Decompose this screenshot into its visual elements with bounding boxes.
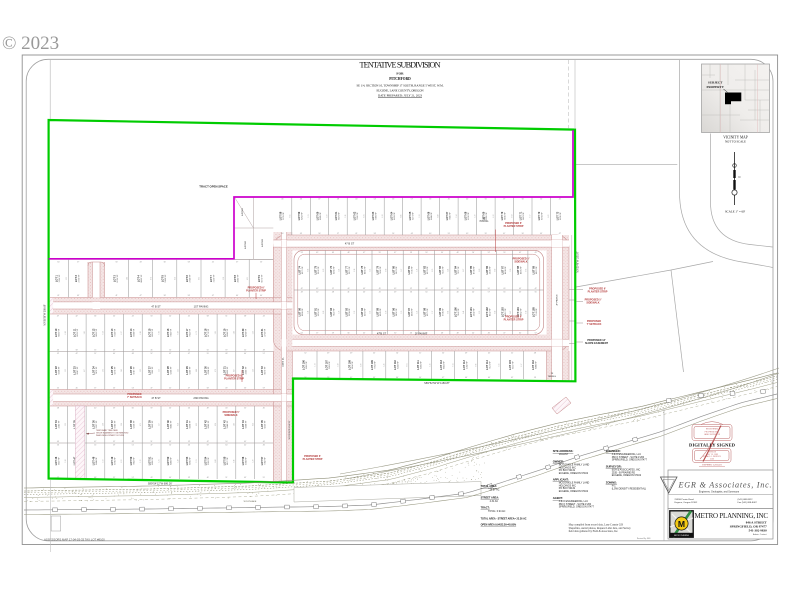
svg-text:1.60: 1.60 <box>121 423 123 426</box>
svg-text:7740 SF: 7740 SF <box>536 308 538 317</box>
svg-text:6153 SF: 6153 SF <box>365 308 367 317</box>
svg-text:0.14: 0.14 <box>175 277 177 280</box>
svg-text:0.88: 0.88 <box>196 369 198 372</box>
svg-text:1.95: 1.95 <box>140 369 142 372</box>
svg-text:4859 SF: 4859 SF <box>152 456 154 465</box>
svg-text:47 B ST: 47 B ST <box>151 396 161 400</box>
svg-text:1.17: 1.17 <box>432 311 434 314</box>
svg-text:6659 SF: 6659 SF <box>96 328 98 337</box>
svg-text:7805 SF: 7805 SF <box>449 211 451 220</box>
svg-text:6356 SF: 6356 SF <box>421 360 423 369</box>
svg-text:SPRINGFIELD, OREGON 97477: SPRINGFIELD, OREGON 97477 <box>559 506 595 509</box>
svg-text:6966 SF: 6966 SF <box>189 456 191 465</box>
svg-text:1.38: 1.38 <box>177 459 179 462</box>
svg-text:0.73: 0.73 <box>215 369 217 372</box>
svg-text:7462 SF: 7462 SF <box>380 266 382 275</box>
svg-text:S89°54'12"W 686.26': S89°54'12"W 686.26' <box>148 482 173 486</box>
svg-text:4298 SF: 4298 SF <box>208 366 210 375</box>
svg-text:Engineers, Geologists, and Sur: Engineers, Geologists, and Surveyors <box>699 491 740 494</box>
svg-text:7013 SF: 7013 SF <box>115 328 117 337</box>
svg-text:TENTATIVE SUBDIVISION: TENTATIVE SUBDIVISION <box>360 61 441 70</box>
svg-text:1.81: 1.81 <box>339 269 341 272</box>
svg-text:8429 SF: 8429 SF <box>264 420 266 429</box>
svg-text:PAVING: PAVING <box>480 220 489 223</box>
svg-text:PLANTER STRIP: PLANTER STRIP <box>588 290 608 293</box>
svg-text:METRO PLANNING: METRO PLANNING <box>674 534 690 537</box>
svg-text:1.39: 1.39 <box>252 459 254 462</box>
svg-text:0.73: 0.73 <box>196 331 198 334</box>
svg-text:7434 SF: 7434 SF <box>59 274 61 283</box>
svg-text:8396 SF: 8396 SF <box>521 266 523 275</box>
svg-text:5416 SF: 5416 SF <box>133 420 135 429</box>
svg-text:EUGENE, OREGON 97402: EUGENE, OREGON 97402 <box>559 490 589 493</box>
svg-text:TOTAL: 0.94 AC: TOTAL: 0.94 AC <box>488 510 506 513</box>
svg-text:0.65: 0.65 <box>199 277 201 280</box>
svg-text:PLANTER STRIP: PLANTER STRIP <box>504 318 524 321</box>
svg-text:VACANT: VACANT <box>559 453 569 456</box>
svg-text:1.92: 1.92 <box>103 369 105 372</box>
svg-text:Fax (541) 688-8087: Fax (541) 688-8087 <box>738 502 758 504</box>
svg-text:26.57 AC: 26.57 AC <box>490 488 500 491</box>
svg-text:0.95: 0.95 <box>526 269 528 272</box>
svg-text:0.18: 0.18 <box>177 423 179 426</box>
svg-text:0.12: 0.12 <box>493 214 495 217</box>
svg-text:5795 SF: 5795 SF <box>283 211 285 220</box>
svg-text:4201 SF: 4201 SF <box>58 420 60 429</box>
svg-text:6986 SF: 6986 SF <box>227 328 229 337</box>
svg-text:1.93: 1.93 <box>419 214 421 217</box>
svg-text:TRACT OPEN SPACE: TRACT OPEN SPACE <box>199 185 228 189</box>
svg-text:5852 SF: 5852 SF <box>396 308 398 317</box>
svg-text:1.69: 1.69 <box>326 214 328 217</box>
svg-text:4294 SF: 4294 SF <box>318 308 320 317</box>
svg-text:7863 SF: 7863 SF <box>133 456 135 465</box>
svg-text:4502 SF: 4502 SF <box>474 308 476 317</box>
svg-text:8488 SF: 8488 SF <box>431 211 433 220</box>
svg-text:LOT 61: LOT 61 <box>242 208 244 216</box>
svg-text:9312 SF: 9312 SF <box>208 456 210 465</box>
svg-text:6947 SF: 6947 SF <box>513 360 515 369</box>
svg-text:N0°05'08"W 358.69': N0°05'08"W 358.69' <box>43 304 46 326</box>
svg-text:0.78: 0.78 <box>385 311 387 314</box>
svg-text:1.56: 1.56 <box>252 331 254 334</box>
svg-text:47 B ST: 47 B ST <box>345 242 355 246</box>
svg-text:0.24: 0.24 <box>215 423 217 426</box>
svg-text:7963 SF: 7963 SF <box>375 360 377 369</box>
svg-text:1.84: 1.84 <box>126 277 128 280</box>
svg-text:0.21: 0.21 <box>247 277 249 280</box>
svg-text:6488 SF: 6488 SF <box>96 456 98 465</box>
svg-text:8267 SF: 8267 SF <box>77 366 79 375</box>
svg-text:0.99: 0.99 <box>432 269 434 272</box>
svg-text:5439 SF: 5439 SF <box>189 366 191 375</box>
svg-text:1.74: 1.74 <box>315 363 317 366</box>
svg-text:ASSESSORS MAP 17-04-03-33 TAX: ASSESSORS MAP 17-04-03-33 TAX LOT #8100 <box>44 537 105 541</box>
svg-text:PLANTER STRIP: PLANTER STRIP <box>504 225 524 228</box>
svg-text:1.86: 1.86 <box>234 423 236 426</box>
svg-text:8714 SF: 8714 SF <box>117 274 119 283</box>
svg-text:Admin. Contact: Admin. Contact <box>753 533 767 536</box>
svg-text:1.29: 1.29 <box>474 214 476 217</box>
svg-text:4232 SF: 4232 SF <box>468 211 470 220</box>
svg-text:7042 SF: 7042 SF <box>458 308 460 317</box>
svg-text:0.23: 0.23 <box>103 331 105 334</box>
svg-text:8088 SF: 8088 SF <box>535 360 537 369</box>
svg-text:TEMPORARY TREE YARD: TEMPORARY TREE YARD <box>96 429 119 432</box>
svg-text:SPRINGFIELD, OREGON 97477: SPRINGFIELD, OREGON 97477 <box>612 459 648 462</box>
svg-text:EUGENE, OREGON 97402: EUGENE, OREGON 97402 <box>559 472 589 475</box>
svg-text:1.21: 1.21 <box>416 311 418 314</box>
svg-text:1.46: 1.46 <box>121 369 123 372</box>
svg-text:7121 SF: 7121 SF <box>443 266 445 275</box>
svg-text:0.13: 0.13 <box>382 214 384 217</box>
svg-text:PITCHFORD: PITCHFORD <box>389 77 411 81</box>
svg-text:SLOPE EASEMENT: SLOPE EASEMENT <box>585 342 609 345</box>
svg-text:0.45: 0.45 <box>307 269 309 272</box>
svg-text:0.74: 0.74 <box>150 277 152 280</box>
svg-text:6476 SF: 6476 SF <box>115 366 117 375</box>
svg-text:8750 SF: 8750 SF <box>542 211 544 220</box>
svg-text:7002 SF: 7002 SF <box>171 328 173 337</box>
svg-text:N: N <box>739 175 741 179</box>
svg-text:LOT 62: LOT 62 <box>245 241 247 249</box>
svg-text:8433 SF: 8433 SF <box>394 211 396 220</box>
svg-text:8707 SF: 8707 SF <box>133 366 135 375</box>
svg-text:0.93: 0.93 <box>511 214 513 217</box>
svg-text:0.31: 0.31 <box>363 214 365 217</box>
svg-text:8438 SF: 8438 SF <box>505 266 507 275</box>
svg-text:8342 SF: 8342 SF <box>489 308 491 317</box>
svg-text:0.64: 0.64 <box>448 311 450 314</box>
svg-text:8681 SF: 8681 SF <box>444 360 446 369</box>
svg-text:0.60: 0.60 <box>494 269 496 272</box>
svg-text:7121 SF: 7121 SF <box>490 360 492 369</box>
svg-text:6870 SF: 6870 SF <box>523 211 525 220</box>
svg-text:W 18TH AVE: W 18TH AVE <box>244 500 257 503</box>
svg-text:EUGENE, OREGON 97402: EUGENE, OREGON 97402 <box>612 474 642 477</box>
svg-text:NOT TO SCALE: NOT TO SCALE <box>725 140 746 144</box>
svg-text:1.55: 1.55 <box>177 369 179 372</box>
svg-text:5903 SF: 5903 SF <box>115 420 117 429</box>
svg-text:7098 SF: 7098 SF <box>375 211 377 220</box>
svg-text:WHEN DEVELOPMENT OCCURS: WHEN DEVELOPMENT OCCURS <box>96 435 125 437</box>
svg-text:1.20: 1.20 <box>345 214 347 217</box>
svg-text:0.11: 0.11 <box>452 363 454 366</box>
svg-text:1.26: 1.26 <box>252 369 254 372</box>
svg-text:METRO PLANNING, INC: METRO PLANNING, INC <box>695 512 769 520</box>
svg-text:4482 SF: 4482 SF <box>467 360 469 369</box>
svg-text:5837 SF: 5837 SF <box>58 456 60 465</box>
svg-text:1.96: 1.96 <box>354 311 356 314</box>
svg-text:4348 SF: 4348 SF <box>489 266 491 275</box>
svg-text:6228 SF: 6228 SF <box>58 366 60 375</box>
svg-text:1.44: 1.44 <box>307 311 309 314</box>
svg-text:6072 SF: 6072 SF <box>536 266 538 275</box>
svg-text:5185 SF: 5185 SF <box>505 211 507 220</box>
svg-text:0.83: 0.83 <box>65 331 67 334</box>
svg-text:0.65: 0.65 <box>290 214 292 217</box>
svg-text:6870 SF: 6870 SF <box>338 211 340 220</box>
svg-text:8579 SF: 8579 SF <box>264 366 266 375</box>
svg-text:8127 SF: 8127 SF <box>227 456 229 465</box>
svg-text:1.76: 1.76 <box>140 459 142 462</box>
svg-text:0.99: 0.99 <box>121 459 123 462</box>
svg-text:1.26: 1.26 <box>339 311 341 314</box>
svg-text:0.39: 0.39 <box>361 363 363 366</box>
svg-text:4706 SF: 4706 SF <box>189 274 191 283</box>
svg-text:0.87: 0.87 <box>510 311 512 314</box>
svg-text:1.74: 1.74 <box>416 269 418 272</box>
svg-text:0.33: 0.33 <box>323 311 325 314</box>
svg-text:0.23: 0.23 <box>252 423 254 426</box>
svg-text:7139 SF: 7139 SF <box>152 366 154 375</box>
svg-text:GROVE EASEMENT TO BE REMOVED: GROVE EASEMENT TO BE REMOVED <box>96 432 129 435</box>
svg-text:8832 SF: 8832 SF <box>141 274 143 283</box>
svg-text:6199 SF: 6199 SF <box>77 328 79 337</box>
svg-text:8084 SF: 8084 SF <box>171 420 173 429</box>
svg-text:6575 SF: 6575 SF <box>427 308 429 317</box>
svg-text:0.37: 0.37 <box>234 369 236 372</box>
svg-text:5380 SF: 5380 SF <box>227 420 229 429</box>
svg-text:6171 SF: 6171 SF <box>302 266 304 275</box>
svg-text:0.67: 0.67 <box>463 269 465 272</box>
svg-text:PLANTER STRIP: PLANTER STRIP <box>246 289 266 292</box>
svg-text:0.89: 0.89 <box>177 331 179 334</box>
svg-text:4.31 AC: 4.31 AC <box>490 500 499 503</box>
svg-text:OPEN AREA 9.94/22.26=45.93%: OPEN AREA 9.94/22.26=45.93% <box>481 524 517 527</box>
svg-text:STREET AREA:: STREET AREA: <box>481 496 500 499</box>
svg-text:LAND SURVEYOR: LAND SURVEYOR <box>704 433 721 436</box>
svg-text:8198 SF: 8198 SF <box>189 420 191 429</box>
svg-text:1.91: 1.91 <box>196 459 198 462</box>
svg-text:7879 SF: 7879 SF <box>96 366 98 375</box>
svg-text:1.61: 1.61 <box>370 311 372 314</box>
svg-text:1.50: 1.50 <box>215 331 217 334</box>
svg-text:4793 SF: 4793 SF <box>79 274 81 283</box>
svg-text:8031 SF: 8031 SF <box>365 266 367 275</box>
svg-text:© 2023: © 2023 <box>2 33 59 54</box>
svg-text:1.50: 1.50 <box>510 269 512 272</box>
svg-text:SIDEWALK: SIDEWALK <box>224 414 237 417</box>
svg-text:7' SETBACK: 7' SETBACK <box>587 323 602 326</box>
svg-text:4233 SF: 4233 SF <box>246 366 248 375</box>
svg-text:5436 SF: 5436 SF <box>171 366 173 375</box>
svg-text:1.29: 1.29 <box>66 277 68 280</box>
svg-text:7622 SF: 7622 SF <box>333 308 335 317</box>
svg-text:1.99: 1.99 <box>401 311 403 314</box>
svg-text:2F PAVING: 2F PAVING <box>556 294 559 305</box>
svg-text:DIGITALLY SIGNED: DIGITALLY SIGNED <box>689 442 736 447</box>
svg-text:0.66: 0.66 <box>196 423 198 426</box>
svg-text:5258 SF: 5258 SF <box>349 308 351 317</box>
svg-text:6403 SF: 6403 SF <box>398 360 400 369</box>
svg-text:0.88: 0.88 <box>215 459 217 462</box>
svg-text:8738 SF: 8738 SF <box>474 266 476 275</box>
svg-text:8393 SF: 8393 SF <box>152 328 154 337</box>
svg-text:0.88: 0.88 <box>437 214 439 217</box>
svg-text:5359 SF: 5359 SF <box>486 211 488 220</box>
svg-text:47TH PL: 47TH PL <box>282 357 285 367</box>
svg-text:1.92: 1.92 <box>103 459 105 462</box>
svg-text:6978 SF: 6978 SF <box>427 266 429 275</box>
svg-text:0.57: 0.57 <box>121 331 123 334</box>
svg-text:0.80: 0.80 <box>140 331 142 334</box>
svg-text:Eugene, Oregon 97402: Eugene, Oregon 97402 <box>675 501 699 504</box>
svg-text:0.17: 0.17 <box>84 369 86 372</box>
svg-text:1ST PAVING: 1ST PAVING <box>194 304 209 308</box>
svg-text:8771 SF: 8771 SF <box>208 328 210 337</box>
svg-text:5693 SF: 5693 SF <box>227 366 229 375</box>
svg-text:0.44: 0.44 <box>463 311 465 314</box>
svg-text:5371 SF: 5371 SF <box>349 266 351 275</box>
svg-text:1.16: 1.16 <box>429 363 431 366</box>
svg-text:0.82: 0.82 <box>159 331 161 334</box>
svg-text:6184 SF: 6184 SF <box>352 360 354 369</box>
svg-text:1.12: 1.12 <box>159 369 161 372</box>
svg-text:PLANTER STRIP: PLANTER STRIP <box>224 377 244 380</box>
svg-text:9693 SF: 9693 SF <box>329 360 331 369</box>
svg-text:EXPIRES: 12/31/23: EXPIRES: 12/31/23 <box>702 465 722 467</box>
svg-text:LOT 63: LOT 63 <box>262 239 264 247</box>
svg-text:2F PAVING: 2F PAVING <box>415 332 427 335</box>
svg-text:0.40: 0.40 <box>234 459 236 462</box>
svg-text:1.81: 1.81 <box>84 331 86 334</box>
svg-text:1.98: 1.98 <box>338 363 340 366</box>
svg-text:S89°52'52"W 1183.87': S89°52'52"W 1183.87' <box>424 381 450 385</box>
svg-text:0.90: 0.90 <box>475 363 477 366</box>
svg-text:0.85: 0.85 <box>400 214 402 217</box>
svg-text:0.22: 0.22 <box>323 269 325 272</box>
svg-text:0.61: 0.61 <box>407 363 409 366</box>
svg-text:SCALE 1" = 60': SCALE 1" = 60' <box>725 210 746 214</box>
svg-text:1.51: 1.51 <box>370 269 372 272</box>
svg-text:1.99: 1.99 <box>65 369 67 372</box>
svg-text:4581 SF: 4581 SF <box>238 274 240 283</box>
svg-text:SIDEWALK: SIDEWALK <box>586 301 599 304</box>
svg-text:5465 SF: 5465 SF <box>333 266 335 275</box>
svg-text:9227 SF: 9227 SF <box>96 420 98 429</box>
svg-text:7382 SF: 7382 SF <box>264 456 266 465</box>
svg-text:9366 SF: 9366 SF <box>165 274 167 283</box>
svg-text:4892 SF: 4892 SF <box>306 360 308 369</box>
svg-text:(541) 688-8322: (541) 688-8322 <box>738 499 754 501</box>
svg-text:1.31: 1.31 <box>159 459 161 462</box>
svg-text:9670 SF: 9670 SF <box>396 266 398 275</box>
svg-text:6263 SF: 6263 SF <box>301 211 303 220</box>
svg-text:N0°02'48"W 192.97': N0°02'48"W 192.97' <box>576 251 579 273</box>
svg-text:S0°05'08"E 104.32': S0°05'08"E 104.32' <box>289 420 291 439</box>
svg-text:0.71: 0.71 <box>140 423 142 426</box>
svg-text:EGR & Associates, Inc.: EGR & Associates, Inc. <box>678 481 772 490</box>
svg-text:5271 SF: 5271 SF <box>412 211 414 220</box>
svg-text:1.21: 1.21 <box>308 214 310 217</box>
svg-text:TOTAL AREA - STREET AREA= 22.2: TOTAL AREA - STREET AREA= 22.26 AC <box>481 517 527 520</box>
svg-text:TRACT:: TRACT: <box>481 506 490 509</box>
svg-text:7654 SF: 7654 SF <box>189 328 191 337</box>
svg-text:4763 SF: 4763 SF <box>264 328 266 337</box>
svg-text:9468 SF: 9468 SF <box>246 456 248 465</box>
svg-text:5786 SF: 5786 SF <box>115 456 117 465</box>
svg-text:2535B Prairie Road: 2535B Prairie Road <box>675 498 695 501</box>
svg-text:47 B ST: 47 B ST <box>377 331 387 335</box>
svg-text:8163 SF: 8163 SF <box>208 420 210 429</box>
svg-text:1.60: 1.60 <box>103 423 105 426</box>
svg-text:FOR: FOR <box>396 72 404 76</box>
svg-text:1.81: 1.81 <box>448 269 450 272</box>
svg-text:6368 SF: 6368 SF <box>246 420 248 429</box>
svg-text:6058 SF: 6058 SF <box>171 456 173 465</box>
svg-text:1.17: 1.17 <box>159 423 161 426</box>
svg-text:8305 SF: 8305 SF <box>320 211 322 220</box>
svg-text:1.67: 1.67 <box>401 269 403 272</box>
svg-text:7632 SF: 7632 SF <box>357 211 359 220</box>
svg-text:M: M <box>678 519 685 529</box>
svg-text:1.84: 1.84 <box>234 331 236 334</box>
svg-text:541-302-9830: 541-302-9830 <box>749 529 767 533</box>
svg-text:9188 SF: 9188 SF <box>133 328 135 337</box>
svg-text:7197 SF: 7197 SF <box>458 266 460 275</box>
svg-text:0.18: 0.18 <box>526 311 528 314</box>
svg-text:7735 SF: 7735 SF <box>411 266 413 275</box>
svg-text:field data gathered by EGR & A: field data gathered by EGR & Associates,… <box>569 530 619 533</box>
svg-text:SIDEWALK: SIDEWALK <box>514 260 527 263</box>
svg-text:0.43: 0.43 <box>494 311 496 314</box>
svg-text:9706 SF: 9706 SF <box>443 308 445 317</box>
svg-text:0.77: 0.77 <box>530 214 532 217</box>
svg-text:0.98: 0.98 <box>385 269 387 272</box>
svg-text:2ND PAVING: 2ND PAVING <box>193 396 208 400</box>
svg-text:1.18: 1.18 <box>223 277 225 280</box>
svg-text:7' SETBACK: 7' SETBACK <box>127 396 142 399</box>
svg-text:REGISTERED: REGISTERED <box>706 429 719 431</box>
svg-text:47 B ST: 47 B ST <box>151 304 161 308</box>
svg-text:Revised By: KES: Revised By: KES <box>637 538 651 540</box>
svg-text:1.94: 1.94 <box>456 214 458 217</box>
svg-text:PLANTER STRIP: PLANTER STRIP <box>303 458 323 461</box>
svg-text:8268 SF: 8268 SF <box>246 328 248 337</box>
svg-text:PAVING: PAVING <box>548 375 556 378</box>
svg-text:6366 SF: 6366 SF <box>302 308 304 317</box>
svg-text:2163: 2163 <box>710 459 714 461</box>
svg-text:1.35: 1.35 <box>384 363 386 366</box>
svg-text:1.28: 1.28 <box>65 459 67 462</box>
svg-text:6655 SF: 6655 SF <box>58 328 60 337</box>
svg-text:5942 SF: 5942 SF <box>318 266 320 275</box>
svg-text:8789 SF: 8789 SF <box>560 211 562 220</box>
svg-text:1.26: 1.26 <box>65 423 67 426</box>
svg-text:0.91: 0.91 <box>479 311 481 314</box>
svg-text:0.17: 0.17 <box>521 363 523 366</box>
svg-text:7045 SF: 7045 SF <box>152 420 154 429</box>
svg-text:6345 SF: 6345 SF <box>380 308 382 317</box>
svg-text:(LOW DENSITY RESIDENTIAL): (LOW DENSITY RESIDENTIAL) <box>612 487 647 490</box>
svg-text:6698 SF: 6698 SF <box>411 308 413 317</box>
svg-text:7449 SF: 7449 SF <box>213 274 215 283</box>
svg-text:1.65: 1.65 <box>498 363 500 366</box>
svg-text:0.18: 0.18 <box>354 269 356 272</box>
svg-text:0.63: 0.63 <box>479 269 481 272</box>
svg-text:0.65: 0.65 <box>548 214 550 217</box>
svg-text:6572 SF: 6572 SF <box>262 274 264 283</box>
svg-text:PROPERTY: PROPERTY <box>707 85 725 89</box>
